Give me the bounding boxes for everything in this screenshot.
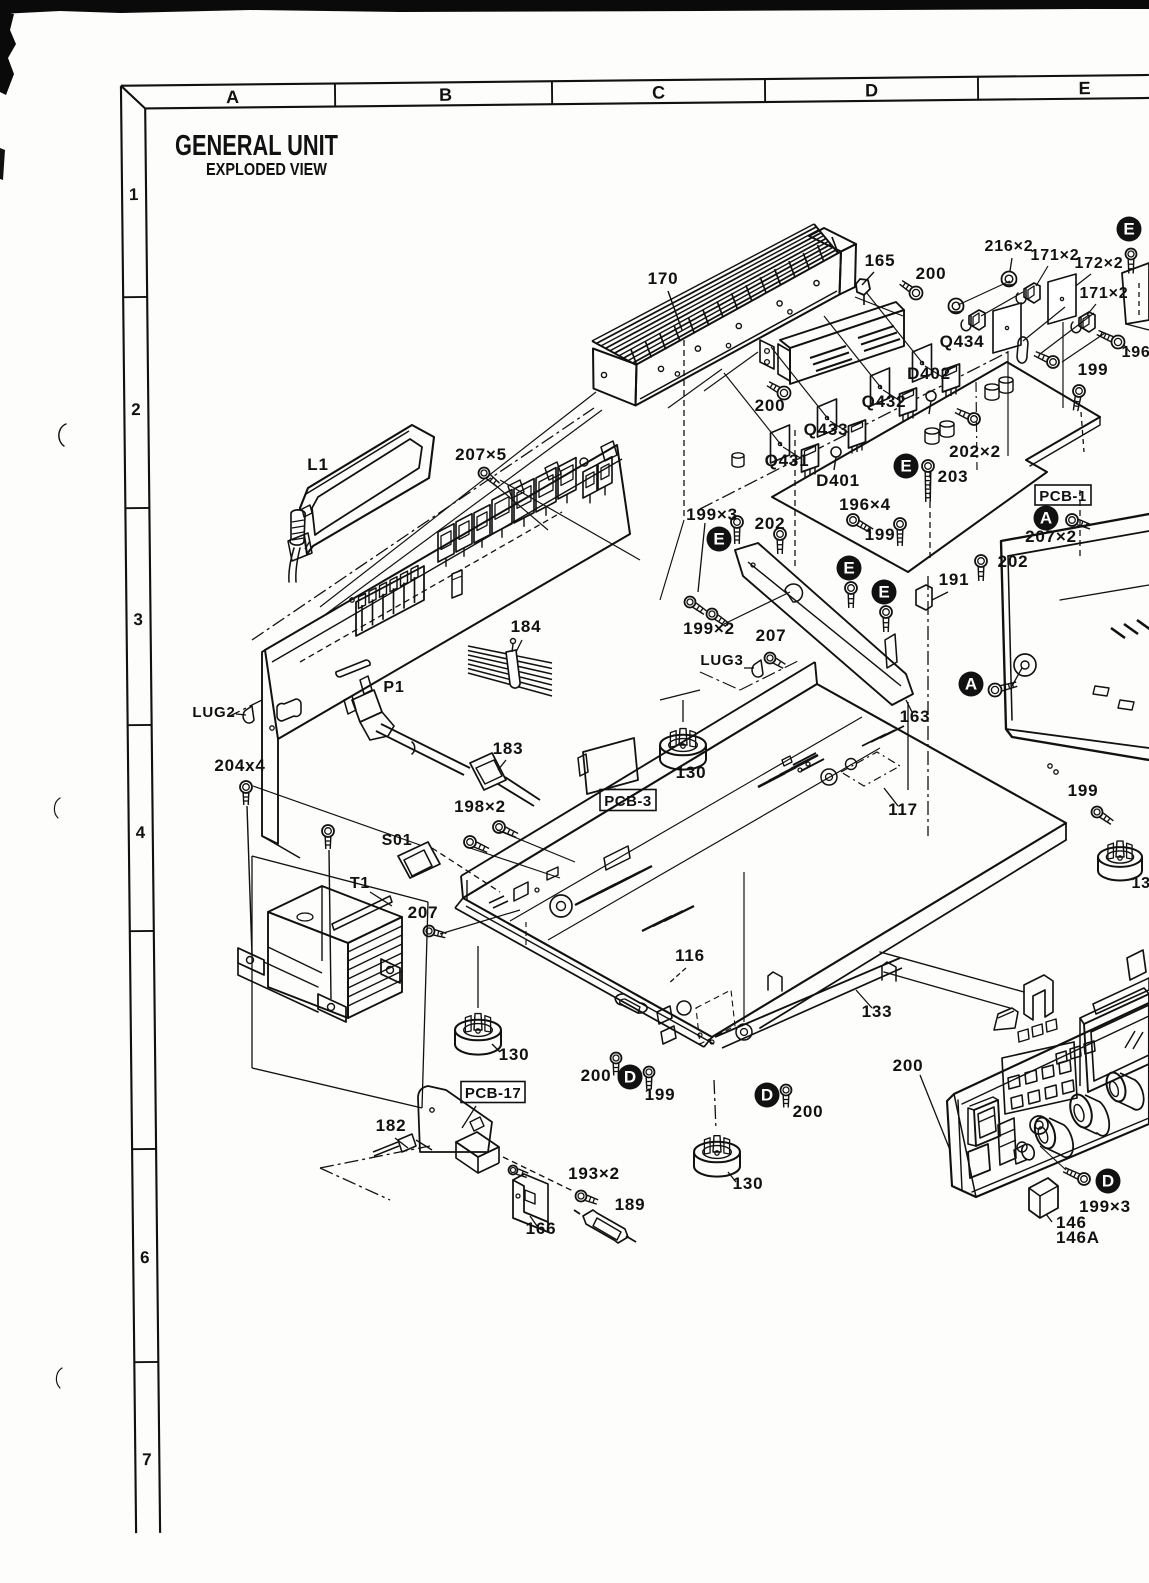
svg-text:199: 199 — [1068, 781, 1099, 800]
svg-text:203: 203 — [938, 467, 969, 486]
svg-text:163: 163 — [900, 707, 931, 726]
svg-text:D: D — [865, 80, 879, 100]
svg-text:D: D — [1102, 1172, 1114, 1191]
svg-text:170: 170 — [648, 269, 679, 288]
svg-text:166: 166 — [526, 1219, 557, 1238]
svg-text:172×2: 172×2 — [1075, 255, 1124, 272]
svg-text:198×2: 198×2 — [454, 797, 506, 816]
svg-text:207×2: 207×2 — [1025, 527, 1077, 546]
svg-text:7: 7 — [142, 1450, 152, 1469]
svg-text:199×3: 199×3 — [686, 505, 738, 524]
svg-text:E: E — [1123, 220, 1134, 239]
svg-text:D: D — [624, 1068, 636, 1087]
svg-text:D: D — [761, 1086, 773, 1105]
svg-text:Q433: Q433 — [804, 420, 849, 439]
svg-text:A: A — [965, 675, 977, 694]
svg-text:LUG2: LUG2 — [192, 704, 235, 721]
svg-text:E: E — [1078, 78, 1091, 98]
svg-text:200: 200 — [755, 396, 786, 415]
svg-text:130: 130 — [733, 1174, 764, 1193]
svg-text:182: 182 — [376, 1116, 407, 1135]
svg-text:E: E — [843, 559, 854, 578]
svg-text:183: 183 — [493, 739, 524, 758]
svg-text:P1: P1 — [383, 679, 404, 696]
svg-text:4: 4 — [136, 823, 146, 842]
svg-text:189: 189 — [615, 1195, 646, 1214]
svg-text:200: 200 — [793, 1102, 824, 1121]
svg-text:117: 117 — [888, 800, 918, 819]
svg-text:D401: D401 — [816, 471, 860, 490]
svg-text:116: 116 — [675, 946, 705, 965]
svg-text:3: 3 — [133, 610, 143, 629]
svg-text:133: 133 — [862, 1002, 893, 1021]
svg-text:207×5: 207×5 — [455, 445, 507, 464]
svg-text:216×2: 216×2 — [985, 238, 1034, 255]
svg-text:T1: T1 — [350, 875, 370, 892]
svg-text:200: 200 — [893, 1056, 924, 1075]
svg-text:C: C — [652, 83, 666, 103]
svg-text:184: 184 — [511, 617, 542, 636]
svg-text:A: A — [226, 87, 240, 107]
svg-text:199×3: 199×3 — [1079, 1197, 1131, 1216]
svg-text:202×2: 202×2 — [949, 442, 1001, 461]
svg-text:LUG3: LUG3 — [700, 652, 743, 669]
svg-text:146A: 146A — [1056, 1228, 1100, 1247]
svg-text:200: 200 — [581, 1066, 612, 1085]
svg-text:199: 199 — [645, 1085, 676, 1104]
svg-text:Q432: Q432 — [862, 392, 907, 411]
svg-text:EXPLODED VIEW: EXPLODED VIEW — [206, 159, 327, 179]
svg-text:193×2: 193×2 — [568, 1164, 620, 1183]
svg-text:Q434: Q434 — [940, 332, 985, 351]
svg-text:1: 1 — [129, 185, 139, 204]
svg-text:2: 2 — [131, 400, 141, 419]
svg-text:E: E — [878, 583, 889, 602]
svg-text:130: 130 — [1131, 875, 1149, 892]
svg-text:D402: D402 — [907, 364, 951, 383]
svg-text:GENERAL UNIT: GENERAL UNIT — [175, 130, 338, 162]
svg-text:A: A — [1040, 509, 1052, 528]
svg-text:171×2: 171×2 — [1080, 285, 1129, 302]
svg-text:E: E — [713, 530, 724, 549]
svg-text:Q431: Q431 — [765, 451, 810, 470]
svg-text:204x4: 204x4 — [214, 756, 265, 775]
svg-text:130: 130 — [499, 1045, 530, 1064]
svg-text:196×4: 196×4 — [839, 495, 891, 514]
svg-text:200: 200 — [916, 264, 947, 283]
svg-text:171×2: 171×2 — [1031, 247, 1080, 264]
svg-text:S01: S01 — [382, 832, 413, 849]
svg-text:165: 165 — [865, 251, 896, 270]
svg-text:199: 199 — [865, 525, 896, 544]
svg-text:E: E — [900, 457, 911, 476]
svg-text:6: 6 — [140, 1248, 150, 1267]
svg-text:191: 191 — [939, 570, 970, 589]
svg-text:199: 199 — [1078, 360, 1109, 379]
svg-text:207: 207 — [756, 626, 787, 645]
svg-text:L1: L1 — [307, 455, 328, 474]
svg-text:PCB-17: PCB-17 — [465, 1085, 521, 1102]
svg-text:207: 207 — [408, 903, 439, 922]
svg-text:B: B — [439, 85, 453, 105]
